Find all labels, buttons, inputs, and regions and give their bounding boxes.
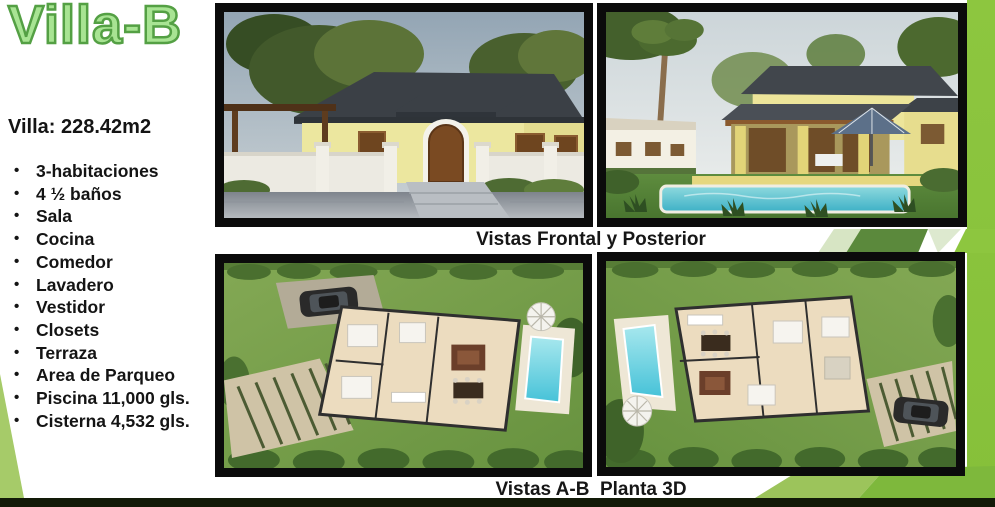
feature-item: Vestidor	[8, 296, 190, 319]
feature-text: Closets	[36, 320, 99, 340]
slide-canvas: Villa-B Villa: 228.42m2 3-habitaciones 4…	[0, 0, 995, 507]
feature-item: Lavadero	[8, 274, 190, 297]
feature-text: Area de Parqueo	[36, 365, 175, 385]
rear-view-pool-render	[606, 12, 958, 218]
feature-item: Cocina	[8, 228, 190, 251]
front-view-render	[224, 12, 584, 218]
feature-item: Closets	[8, 319, 190, 342]
photo-frame-plan-a	[215, 254, 592, 477]
feature-item: Sala	[8, 205, 190, 228]
feature-item: Cisterna 4,532 gls.	[8, 410, 190, 433]
feature-text: Comedor	[36, 252, 113, 272]
caption-views-front-rear: Vistas Frontal y Posterior	[215, 229, 967, 251]
feature-item: Terraza	[8, 342, 190, 365]
feature-text: Cisterna 4,532 gls.	[36, 411, 190, 431]
feature-text: Terraza	[36, 343, 97, 363]
page-title: Villa-B	[8, 0, 182, 56]
floor-plan-3d-a	[224, 263, 583, 468]
feature-text: Sala	[36, 206, 72, 226]
feature-item: Area de Parqueo	[8, 364, 190, 387]
photo-frame-plan-b	[597, 252, 965, 476]
green-edge-strip	[967, 0, 995, 507]
feature-text: Cocina	[36, 229, 94, 249]
feature-text: Piscina 11,000 gls.	[36, 388, 190, 408]
feature-text: Vestidor	[36, 297, 105, 317]
feature-item: 4 ½ baños	[8, 183, 190, 206]
photo-frame-front-view	[215, 3, 593, 227]
feature-item: 3-habitaciones	[8, 160, 190, 183]
feature-list: 3-habitaciones 4 ½ baños Sala Cocina Com…	[8, 160, 190, 432]
photo-frame-rear-view	[597, 3, 967, 227]
feature-item: Comedor	[8, 251, 190, 274]
floor-plan-3d-b	[606, 261, 956, 467]
feature-text: 4 ½ baños	[36, 184, 122, 204]
area-label: Villa: 228.42m2	[8, 116, 151, 139]
feature-text: 3-habitaciones	[36, 161, 159, 181]
caption-plans-3d: Vistas A-B Planta 3D	[215, 479, 967, 501]
feature-text: Lavadero	[36, 275, 114, 295]
feature-item: Piscina 11,000 gls.	[8, 387, 190, 410]
